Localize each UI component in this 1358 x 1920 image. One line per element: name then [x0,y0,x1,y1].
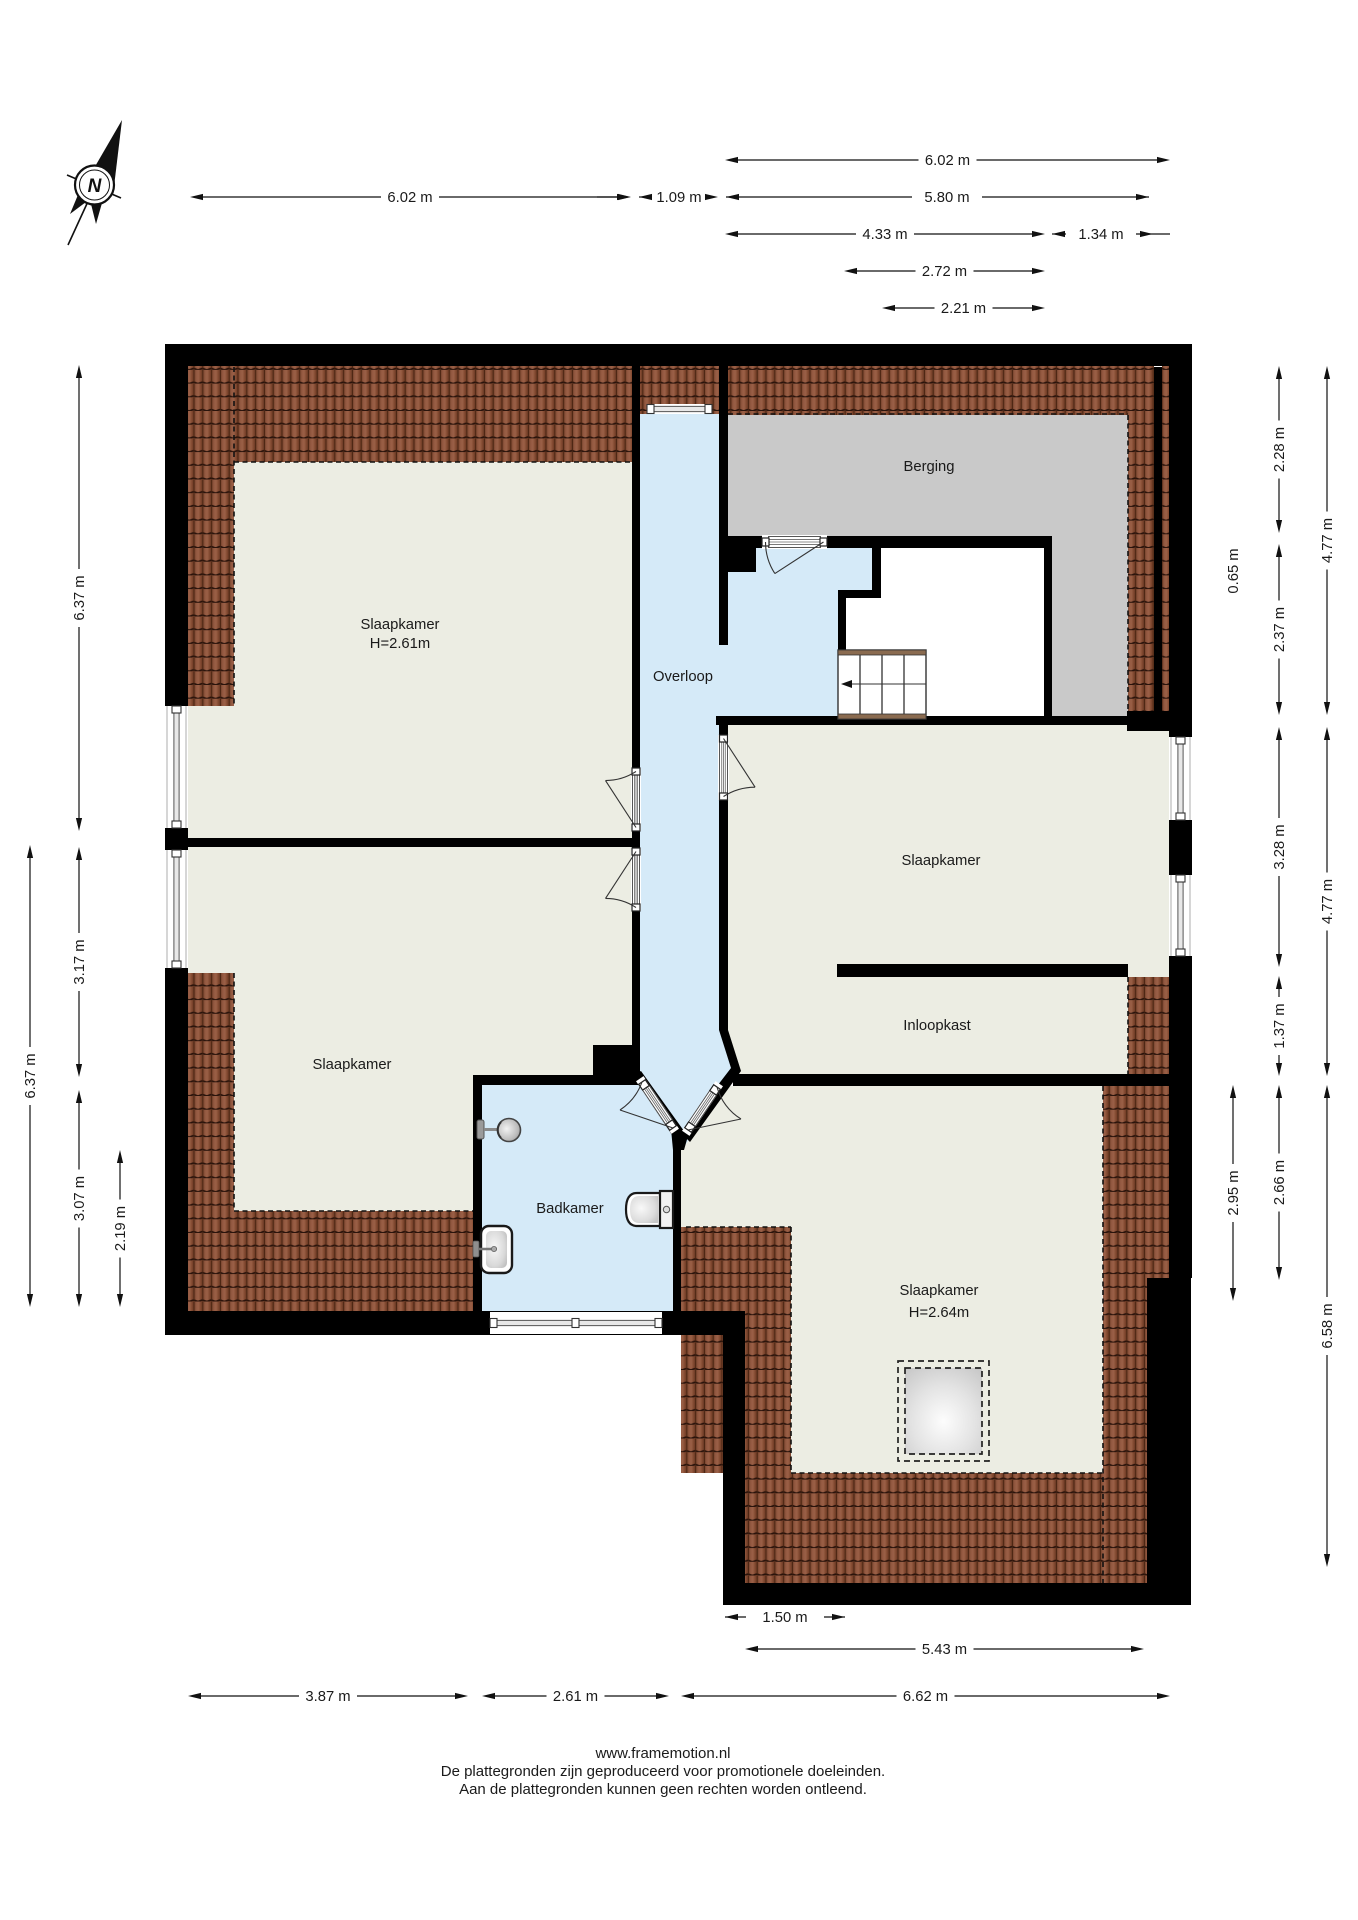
svg-text:5.43 m: 5.43 m [922,1642,967,1658]
svg-text:0.65 m: 0.65 m [1226,548,1242,593]
svg-text:6.37 m: 6.37 m [23,1053,39,1098]
svg-text:3.07 m: 3.07 m [72,1176,88,1221]
svg-text:Badkamer: Badkamer [536,1201,604,1217]
svg-text:4.77 m: 4.77 m [1320,879,1336,924]
svg-text:1.34 m: 1.34 m [1078,227,1123,243]
svg-text:5.80 m: 5.80 m [924,190,969,206]
svg-text:H=2.61m: H=2.61m [370,636,430,652]
svg-text:3.87 m: 3.87 m [305,1689,350,1705]
svg-text:2.21 m: 2.21 m [941,301,986,317]
svg-text:Slaapkamer: Slaapkamer [900,1283,979,1299]
svg-text:3.17 m: 3.17 m [72,939,88,984]
svg-text:2.37 m: 2.37 m [1272,607,1288,652]
svg-text:De plattegronden zijn geproduc: De plattegronden zijn geproduceerd voor … [441,1763,885,1780]
svg-text:6.58 m: 6.58 m [1320,1303,1336,1348]
svg-text:1.50 m: 1.50 m [762,1610,807,1626]
svg-text:6.62 m: 6.62 m [903,1689,948,1705]
svg-text:1.09 m: 1.09 m [656,190,701,206]
svg-text:2.95 m: 2.95 m [1226,1170,1242,1215]
svg-text:6.37 m: 6.37 m [72,575,88,620]
svg-text:Overloop: Overloop [653,669,713,685]
svg-text:1.37 m: 1.37 m [1272,1003,1288,1048]
svg-text:Aan de plattegronden kunnen ge: Aan de plattegronden kunnen geen rechten… [459,1781,867,1798]
svg-text:Berging: Berging [903,459,954,475]
svg-text:2.28 m: 2.28 m [1272,427,1288,472]
svg-text:N: N [88,176,103,197]
svg-text:3.28 m: 3.28 m [1272,824,1288,869]
svg-text:4.33 m: 4.33 m [862,227,907,243]
svg-text:2.19 m: 2.19 m [113,1206,129,1251]
svg-text:6.02 m: 6.02 m [925,153,970,169]
svg-text:6.02 m: 6.02 m [387,190,432,206]
svg-text:Inloopkast: Inloopkast [903,1018,970,1034]
svg-text:Slaapkamer: Slaapkamer [902,853,981,869]
svg-text:4.77 m: 4.77 m [1320,518,1336,563]
svg-text:2.61 m: 2.61 m [553,1689,598,1705]
svg-text:H=2.64m: H=2.64m [909,1305,969,1321]
svg-text:2.72 m: 2.72 m [922,264,967,280]
svg-text:Slaapkamer: Slaapkamer [313,1057,392,1073]
svg-text:www.framemotion.nl: www.framemotion.nl [594,1745,730,1762]
svg-text:2.66 m: 2.66 m [1272,1160,1288,1205]
svg-text:Slaapkamer: Slaapkamer [361,617,440,633]
